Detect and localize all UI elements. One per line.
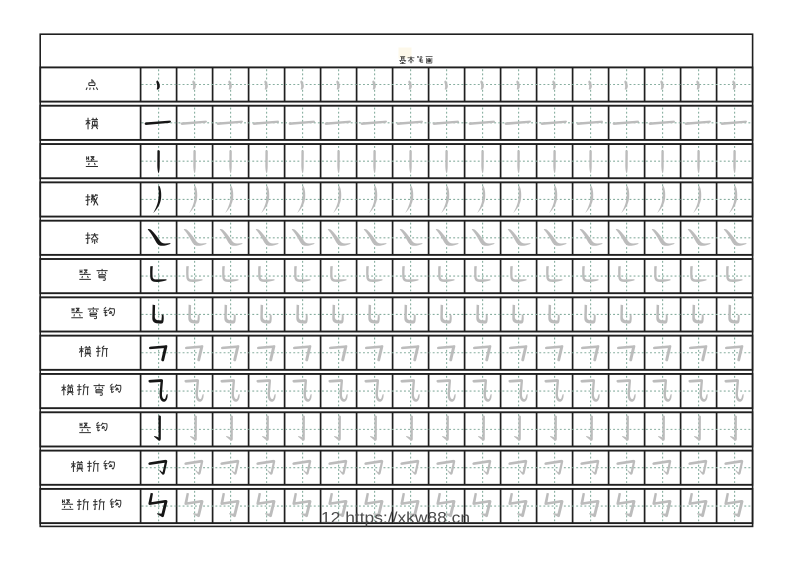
svg-text:12 https://xkw88.cn: 12 https://xkw88.cn: [321, 510, 470, 527]
